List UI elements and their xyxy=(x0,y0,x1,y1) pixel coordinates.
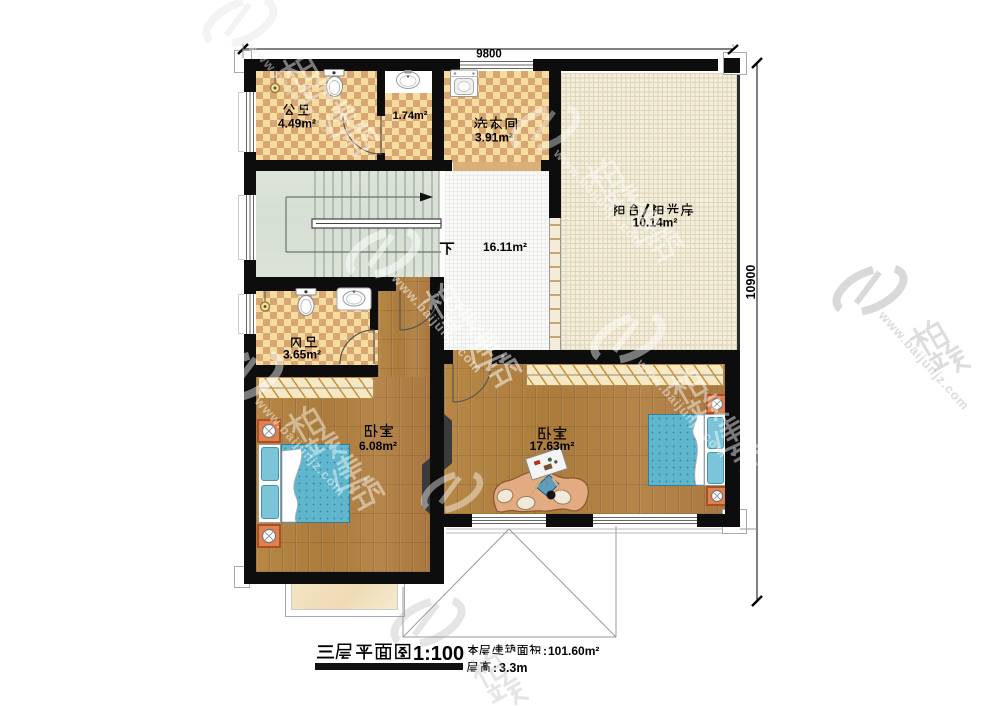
svg-text::: : xyxy=(543,644,547,658)
svg-text::: : xyxy=(493,661,497,675)
svg-text:10900: 10900 xyxy=(744,265,758,300)
svg-text:www.baijunjz.com: www.baijunjz.com xyxy=(875,307,973,413)
svg-text:1:100: 1:100 xyxy=(413,643,464,665)
svg-text:3.3m: 3.3m xyxy=(499,661,528,675)
svg-text:101.60m²: 101.60m² xyxy=(548,644,599,658)
